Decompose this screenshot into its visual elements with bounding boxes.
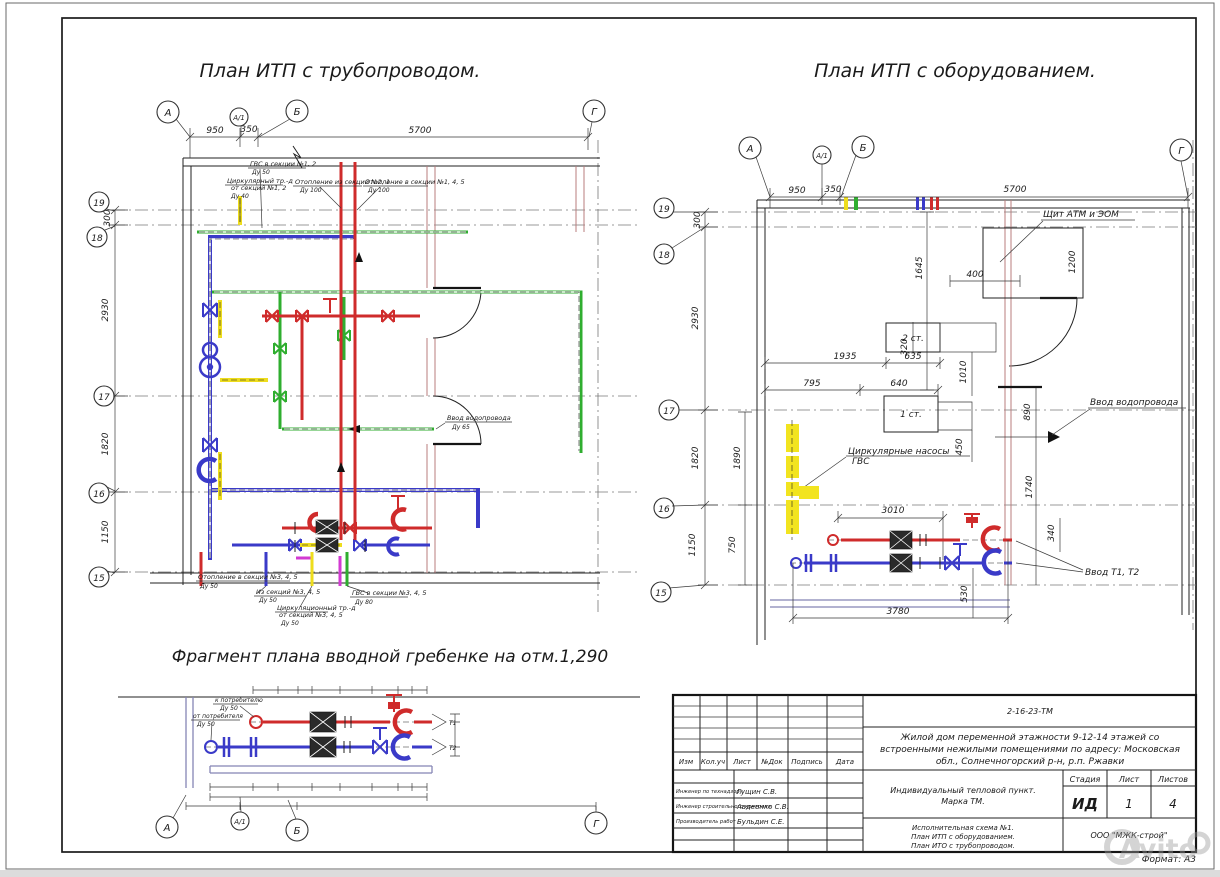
dim-label: 340 [1047, 524, 1057, 541]
axis-label: 15 [655, 589, 667, 599]
dim-label: 3010 [882, 506, 905, 516]
fragment-plan: Фрагмент плана вводной гребенке на отм.1… [118, 647, 640, 841]
pipe-label: Ввод водопровода [447, 414, 511, 422]
dim-label: 350 [240, 125, 257, 135]
axis-label: 17 [663, 407, 675, 417]
right-plan-equipment: Щит АТМ и ЭОМ 1645 400 1200 320 2 ст. 19… [761, 210, 1186, 585]
title-block: Изм Кол.уч Лист №Док Подпись Дата Инжене… [673, 695, 1196, 852]
pipe-label: Ду 65 [451, 424, 470, 431]
dim-label: 640 [890, 379, 907, 389]
pipe-label: от потребителя [193, 713, 243, 720]
dim-label: 750 [728, 536, 738, 553]
tb-object-line: Индивидуальный тепловой пункт. [890, 786, 1036, 795]
pipe-label: Ду 80 [354, 599, 373, 606]
axis-label: Б [860, 143, 867, 154]
pipe-label: Ду 50 [196, 721, 215, 728]
pipe-label: Т2 [449, 745, 457, 752]
pipe-label: ГВС в секции №1, 2 [250, 160, 316, 168]
dim-label: 795 [803, 379, 820, 389]
dim-label: 2930 [691, 306, 701, 329]
dim-label: 1820 [691, 446, 701, 469]
avito-watermark: Avito [1107, 832, 1208, 865]
dim-label: 1740 [1025, 475, 1035, 498]
axis-label: 15 [93, 574, 105, 584]
tb-stage-value: ИД [1072, 795, 1098, 813]
axis-label: А [164, 108, 172, 119]
right-plan-title: План ИТП с оборудованием. [814, 60, 1096, 82]
watermark-text: Avito [1119, 834, 1197, 865]
dim-label: 635 [904, 352, 921, 362]
right-plan: План ИТП с оборудованием. 950 350 5700 А… [651, 60, 1196, 645]
tb-signer-role: Производитель работ [676, 819, 737, 825]
panel-label: Щит АТМ и ЭОМ [1043, 210, 1119, 220]
dim-label: 1935 [834, 352, 857, 362]
tb-sheet-label: Лист [1118, 775, 1140, 784]
dim-label: 1820 [101, 432, 111, 455]
tb-col-izm: Изм [679, 758, 694, 766]
tb-col-koluch: Кол.уч [701, 758, 725, 766]
dim-label: 1645 [915, 256, 925, 279]
inlet-label: Ввод водопровода [1090, 398, 1178, 408]
tb-project-line: обл., Солнечногорский р-н, р.п. Ржавки [936, 757, 1124, 767]
pipe-label: Ду 100 [367, 187, 390, 194]
drawing-canvas: План ИТП с трубопроводом. 950 350 5700 А… [0, 0, 1220, 877]
tb-signer-role: Инженер по технадзору [676, 789, 744, 795]
pipe-label: к потребителю [215, 697, 263, 704]
axis-label: Б [294, 107, 301, 118]
pipe-label: ГВС в секции №3, 4, 5 [352, 589, 426, 597]
tb-signer-name: Авдеенко С.В. [736, 803, 789, 811]
tb-stage-label: Стадия [1070, 775, 1101, 784]
left-plan-walls [150, 146, 600, 585]
axis-label: А/1 [232, 114, 245, 122]
tb-col-list: Лист [732, 758, 752, 766]
pipe-label: Ду 50 [280, 620, 299, 627]
photo-edge [0, 870, 1220, 877]
inlet-label: Ввод Т1, Т2 [1085, 568, 1140, 578]
axis-label: Б [294, 826, 301, 837]
dim-label: 1010 [959, 360, 969, 383]
axis-label: А [163, 823, 171, 834]
dim-label: 530 [960, 585, 970, 602]
left-plan-top-dims: 950 350 5700 А А/1 Б Г [157, 100, 605, 158]
tb-signer-name: Бульдин С.Е. [737, 818, 785, 826]
pipe-label: Ду 50 [258, 597, 277, 604]
tb-sheets-value: 4 [1169, 797, 1177, 811]
pipe-label: Ду 50 [219, 705, 238, 712]
axis-label: 19 [658, 205, 670, 215]
equipment-label: 2 ст. [902, 334, 924, 344]
tb-col-data: Дата [835, 758, 854, 766]
tb-sheet-value: 1 [1125, 797, 1133, 811]
tb-doc-number: 2-16-23-ТМ [1007, 707, 1053, 716]
dim-label: 1150 [101, 520, 111, 543]
pipe-label: Из секций №3, 4, 5 [256, 588, 320, 596]
axis-label: А [746, 144, 754, 155]
tb-project-line: Жилой дом переменной этажности 9-12-14 э… [900, 733, 1160, 743]
axis-label: 17 [98, 393, 110, 403]
drawing-sheet: План ИТП с трубопроводом. 950 350 5700 А… [0, 0, 1220, 877]
pumps-label: Циркулярные насосы [848, 447, 950, 457]
axis-label: 18 [91, 234, 103, 244]
tb-col-podpis: Подпись [791, 758, 823, 766]
pipe-label: Т1 [449, 720, 456, 727]
dim-label: 890 [1023, 403, 1033, 420]
pipe-label: Отопление в секции №3, 4, 5 [198, 573, 298, 581]
left-plan-left-dims: 300 2930 1820 1150 19 18 17 16 15 [87, 192, 128, 587]
tb-project-line: встроенными нежилыми помещениями по адре… [880, 745, 1181, 755]
left-plan-title: План ИТП с трубопроводом. [200, 60, 481, 82]
tb-scheme-line: План ИТП с оборудованием. [911, 833, 1015, 841]
axis-label: 18 [658, 251, 670, 261]
equipment-label: 1 ст. [900, 410, 922, 420]
dim-label: 5700 [409, 126, 432, 136]
right-plan-bottom-piping: 3010 Ввод Т1, Т2 340 530 [789, 506, 1140, 624]
dim-label: 300 [103, 209, 113, 226]
axis-label: 16 [93, 490, 105, 500]
pipe-label: Отопление в секции №1, 4, 5 [365, 178, 465, 186]
tb-object-line: Марка ТМ. [941, 797, 985, 806]
tb-signer-name: Гущин С.В. [737, 788, 777, 796]
pumps-label: ГВС [852, 457, 870, 467]
tb-col-ndok: №Док [760, 758, 783, 766]
dim-label: 2930 [101, 298, 111, 321]
pipe-label: Ду 50 [199, 583, 218, 590]
pipe-label: Ду 100 [299, 187, 322, 194]
tb-scheme-line: План ИТО с трубопроводом. [911, 842, 1015, 850]
tb-sheets-label: Листов [1157, 775, 1188, 784]
dim-label: 300 [693, 211, 703, 228]
dim-label: 450 [955, 438, 965, 455]
dim-label: 1150 [688, 533, 698, 556]
axis-label: А/1 [233, 818, 246, 826]
fragment-title: Фрагмент плана вводной гребенке на отм.1… [172, 647, 608, 667]
dim-label: 1890 [733, 446, 743, 469]
tb-scheme-line: Исполнительная схема №1. [912, 824, 1014, 832]
pipe-label: Ду 50 [251, 169, 270, 176]
left-plan: План ИТП с трубопроводом. 950 350 5700 А… [87, 60, 640, 627]
dim-label: 350 [824, 185, 841, 195]
dim-label: 950 [206, 126, 223, 136]
dim-label: 950 [788, 186, 805, 196]
dim-label: 5700 [1004, 185, 1027, 195]
dim-label: 3780 [887, 607, 910, 617]
right-plan-left-dims: 300 2930 1820 1150 1890 750 19 18 17 16 … [651, 198, 752, 602]
axis-label: А/1 [815, 152, 828, 160]
right-plan-axis-lines [705, 140, 1196, 630]
left-plan-pipes [197, 162, 581, 586]
dim-label: 400 [966, 270, 983, 280]
dim-label: 1200 [1068, 250, 1078, 273]
axis-label: 16 [658, 505, 670, 515]
axis-label: 19 [93, 199, 105, 209]
pipe-label: Ду 40 [230, 193, 249, 200]
right-plan-top-dims: 950 350 5700 А А/1 Б Г [739, 136, 1192, 208]
